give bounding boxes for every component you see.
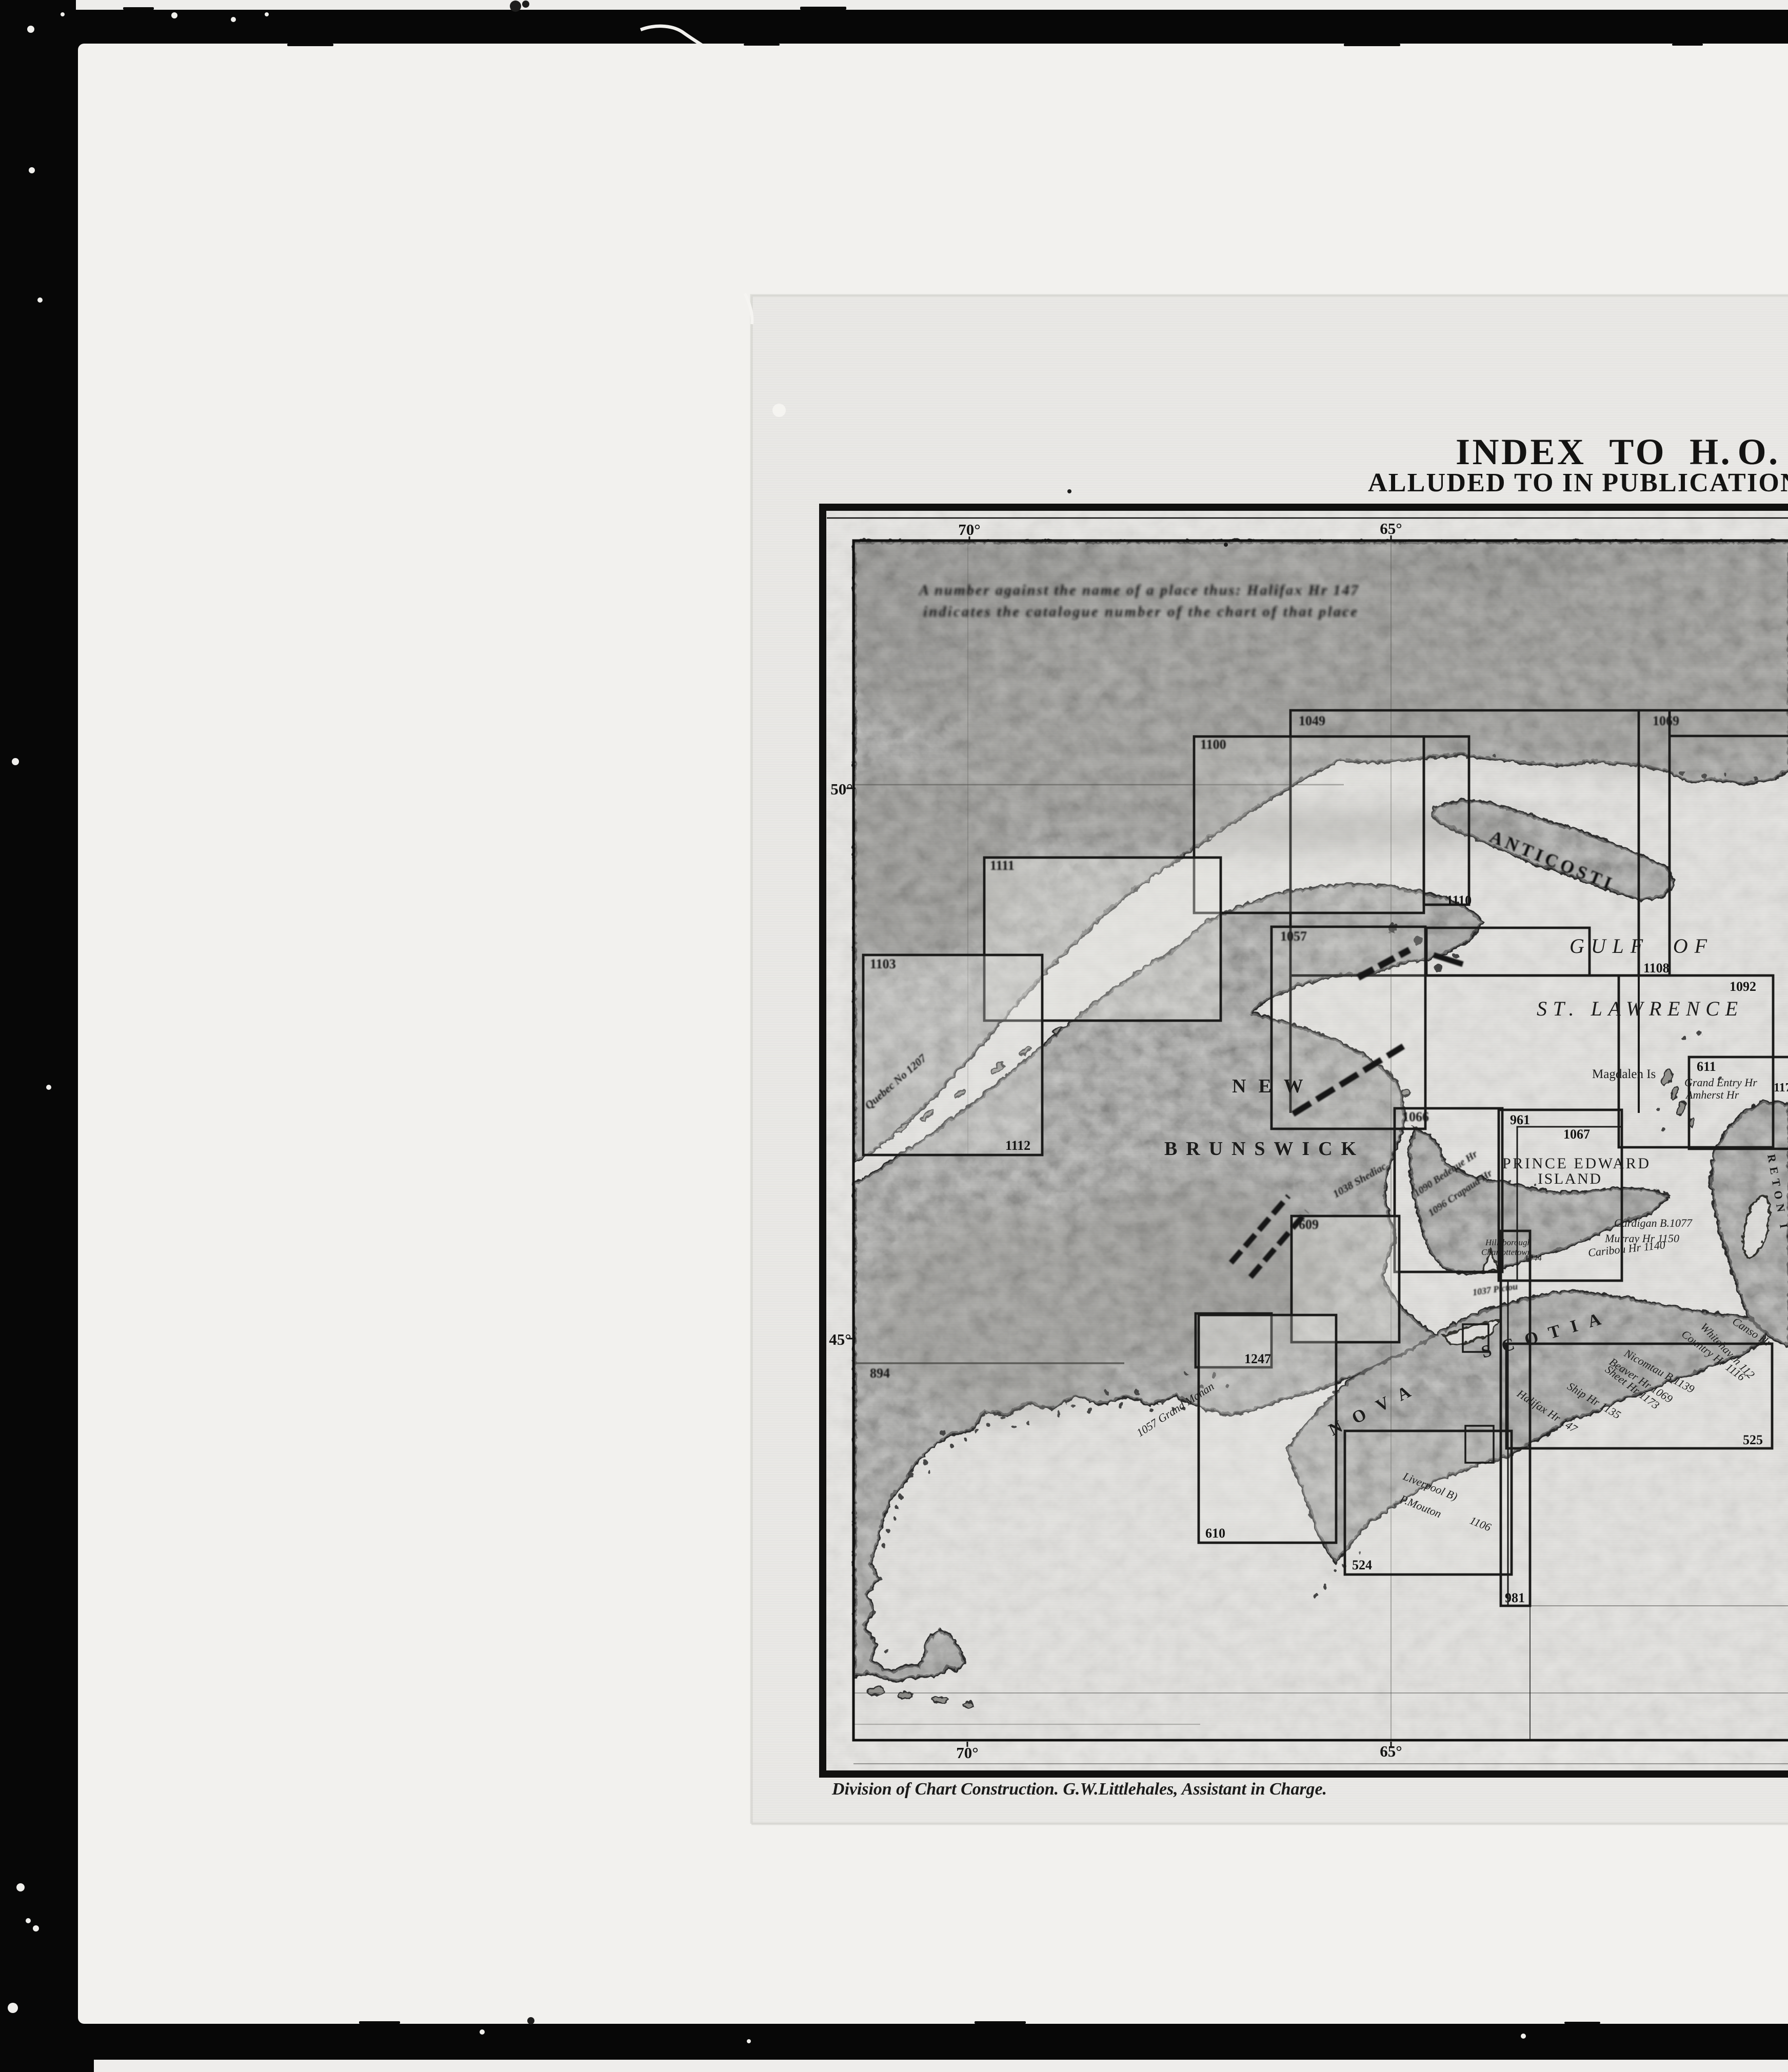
svg-text:961: 961	[1510, 1112, 1530, 1127]
svg-text:Division of Chart Construction: Division of Chart Construction. G.W.Litt…	[831, 1780, 1327, 1799]
svg-text:1069: 1069	[1653, 713, 1679, 728]
svg-text:Hillsborough: Hillsborough	[1485, 1238, 1532, 1247]
svg-text:610: 610	[1205, 1526, 1225, 1541]
svg-text:1067: 1067	[1563, 1127, 1590, 1142]
svg-text:70°: 70°	[958, 521, 980, 539]
svg-text:981: 981	[1505, 1590, 1525, 1605]
svg-text:1049: 1049	[1299, 713, 1325, 728]
svg-text:1110: 1110	[1446, 893, 1472, 908]
svg-text:ISLAND: ISLAND	[1538, 1170, 1603, 1187]
svg-text:indicates the catalogue number: indicates the catalogue number of the ch…	[923, 604, 1357, 620]
svg-text:INDEX TO H. O. CH: INDEX TO H. O. CH	[1456, 431, 1788, 472]
svg-text:PRINCE EDWARD: PRINCE EDWARD	[1502, 1155, 1652, 1172]
svg-text:894: 894	[870, 1366, 890, 1381]
svg-text:Cardigan B.1077: Cardigan B.1077	[1614, 1217, 1693, 1229]
svg-text:1108: 1108	[1643, 961, 1670, 975]
svg-text:65°: 65°	[1380, 520, 1402, 537]
svg-text:1092: 1092	[1730, 979, 1756, 994]
svg-text:1044: 1044	[1524, 1253, 1542, 1263]
svg-text:611: 611	[1697, 1059, 1716, 1074]
svg-text:117: 117	[1774, 1081, 1788, 1094]
svg-text:ALLUDED TO IN PUBLICATIONS: ALLUDED TO IN PUBLICATIONS	[1368, 468, 1788, 497]
svg-text:Grand Entry Hr: Grand Entry Hr	[1684, 1076, 1757, 1089]
svg-text:1111: 1111	[990, 858, 1015, 873]
svg-text:BRUNSWICK: BRUNSWICK	[1164, 1138, 1367, 1160]
svg-text:525: 525	[1743, 1432, 1763, 1447]
svg-text:Amherst Hr: Amherst Hr	[1685, 1088, 1739, 1101]
svg-text:1100: 1100	[1200, 737, 1226, 752]
svg-text:524: 524	[1352, 1558, 1372, 1572]
svg-text:1103: 1103	[870, 957, 896, 971]
svg-text:1112: 1112	[1005, 1138, 1030, 1153]
svg-text:1057: 1057	[1280, 929, 1307, 944]
svg-text:1066: 1066	[1402, 1109, 1429, 1124]
svg-text:A number against the name of a: A number against the name of a place thu…	[918, 582, 1359, 599]
svg-text:1247: 1247	[1244, 1351, 1271, 1366]
svg-text:NEW: NEW	[1232, 1075, 1316, 1097]
svg-text:Magdalen Is: Magdalen Is	[1592, 1067, 1656, 1081]
